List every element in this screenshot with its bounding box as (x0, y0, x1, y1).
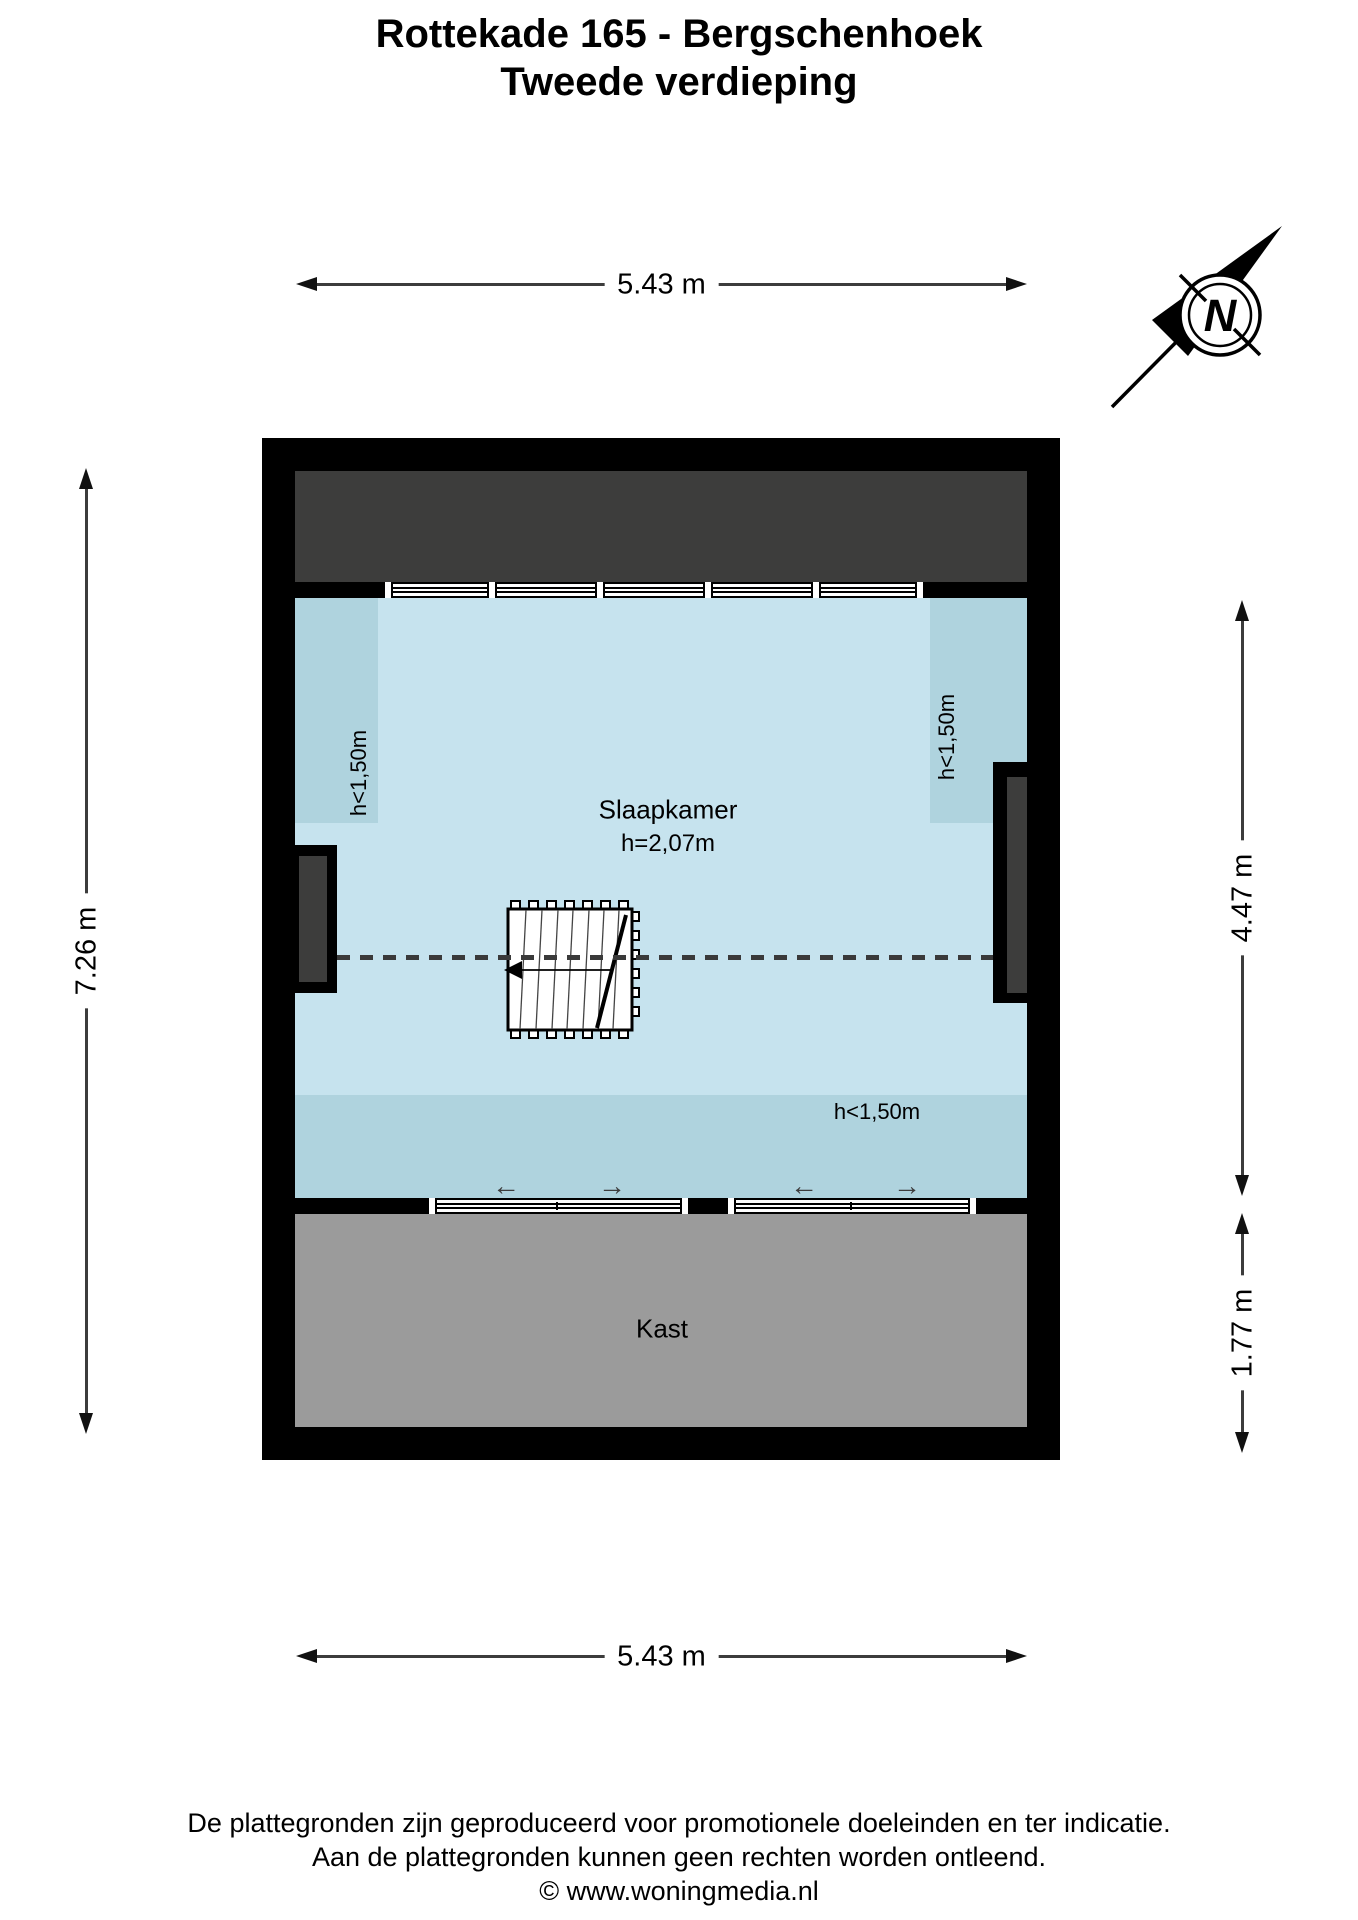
arrowhead-down-icon (79, 1413, 93, 1434)
window-mullion (680, 1198, 690, 1214)
window-mullion (383, 582, 393, 598)
dimension-left-label: 7.26 m (71, 894, 104, 1009)
low-height-label-bottom: h<1,50m (834, 1099, 920, 1125)
slide-arrow-right-icon: → (598, 1170, 626, 1202)
dimension-right-upper: 4.47 m (1228, 600, 1258, 1196)
arrowhead-up-icon (79, 468, 93, 489)
window-top (383, 582, 925, 598)
dimension-right-lower-label: 1.77 m (1227, 1276, 1260, 1391)
page-title-address: Rottekade 165 - Bergschenhoek (0, 10, 1358, 58)
door-post (690, 1198, 726, 1214)
closet-label: Kast (636, 1314, 688, 1345)
height-boundary-dashed-line (337, 955, 993, 960)
window-mullion (427, 1198, 437, 1214)
door-center-tick (850, 1202, 852, 1210)
door-center-tick (556, 1202, 558, 1210)
floorplan-outline: ← → ← → Slaapkamer h=2,07m h<1,50m h<1,5… (262, 438, 1060, 1460)
arrowhead-left-icon (296, 1649, 317, 1663)
footer-line-1: De plattegronden zijn geproduceerd voor … (0, 1806, 1358, 1840)
arrowhead-right-icon (1006, 1649, 1027, 1663)
roof-slope-area-top (295, 471, 1027, 582)
arrowhead-up-icon (1235, 600, 1249, 621)
chimney-left (295, 845, 337, 993)
arrowhead-down-icon (1235, 1432, 1249, 1453)
compass-north-letter: N (1204, 290, 1238, 341)
window-mullion (487, 582, 497, 598)
slide-arrow-right-icon: → (893, 1170, 921, 1202)
arrowhead-left-icon (296, 277, 317, 291)
footer-line-2: Aan de plattegronden kunnen geen rechten… (0, 1840, 1358, 1874)
footer-copyright: © www.woningmedia.nl (0, 1874, 1358, 1908)
footer-disclaimer: De plattegronden zijn geproduceerd voor … (0, 1806, 1358, 1908)
dimension-top-label: 5.43 m (604, 269, 719, 302)
slide-arrow-left-icon: ← (492, 1170, 520, 1202)
chimney-right (993, 762, 1027, 1003)
dimension-right-upper-label: 4.47 m (1227, 841, 1260, 956)
floorplan-page: Rottekade 165 - Bergschenhoek Tweede ver… (0, 0, 1358, 1920)
low-height-label-left: h<1,50m (346, 730, 372, 816)
dimension-left: 7.26 m (72, 468, 102, 1434)
low-height-label-right: h<1,50m (934, 694, 960, 780)
dimension-right-lower: 1.77 m (1228, 1213, 1258, 1453)
dimension-bottom: 5.43 m (296, 1642, 1027, 1672)
closet-sliding-door-left (427, 1198, 690, 1214)
window-mullion (703, 582, 713, 598)
dimension-top: 5.43 m (296, 270, 1027, 300)
window-mullion (915, 582, 925, 598)
window-mullion (811, 582, 821, 598)
arrowhead-right-icon (1006, 277, 1027, 291)
staircase-icon (498, 899, 644, 1043)
compass-icon: N (1100, 190, 1300, 420)
arrowhead-down-icon (1235, 1175, 1249, 1196)
window-mullion (968, 1198, 978, 1214)
bedroom-label: Slaapkamer (599, 795, 738, 826)
chimney-left-fill (299, 856, 327, 982)
window-mullion (595, 582, 605, 598)
arrowhead-up-icon (1235, 1213, 1249, 1234)
chimney-right-fill (1007, 777, 1027, 993)
window-mullion (726, 1198, 736, 1214)
bedroom-ceiling-height-label: h=2,07m (621, 830, 715, 858)
closet-sliding-door-right (726, 1198, 978, 1214)
dimension-bottom-label: 5.43 m (604, 1641, 719, 1674)
page-title-floor: Tweede verdieping (0, 58, 1358, 106)
slide-arrow-left-icon: ← (790, 1170, 818, 1202)
page-title: Rottekade 165 - Bergschenhoek Tweede ver… (0, 10, 1358, 106)
